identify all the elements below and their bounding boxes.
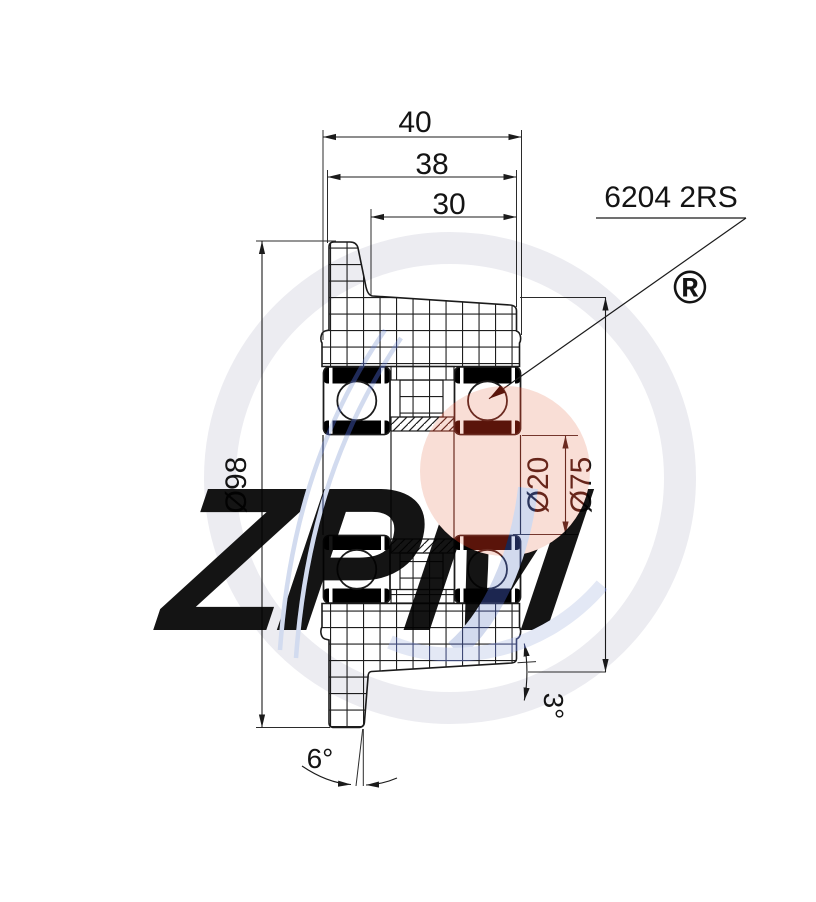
watermark-red-circle bbox=[420, 386, 590, 556]
angle-6deg-label: 6° bbox=[307, 743, 334, 774]
dim-hub-width-label: 38 bbox=[415, 148, 448, 181]
drawing-canvas: 40 38 30 Ø98 Ø20 Ø75 3° 6° 6204 2RS ZPM … bbox=[0, 0, 816, 902]
hub-rib-band-upper bbox=[391, 367, 454, 381]
dim-recess-width-label: 30 bbox=[432, 188, 465, 221]
hub-rib-core-upper bbox=[400, 380, 443, 417]
angle-6deg-arc-right bbox=[366, 778, 397, 785]
dim-overall-width-label: 40 bbox=[398, 106, 431, 139]
technical-drawing: 40 38 30 Ø98 Ø20 Ø75 3° 6° 6204 2RS ZPM … bbox=[0, 0, 816, 902]
registered-trademark-symbol: ® bbox=[673, 261, 707, 313]
bearing-callout-label: 6204 2RS bbox=[604, 181, 737, 214]
